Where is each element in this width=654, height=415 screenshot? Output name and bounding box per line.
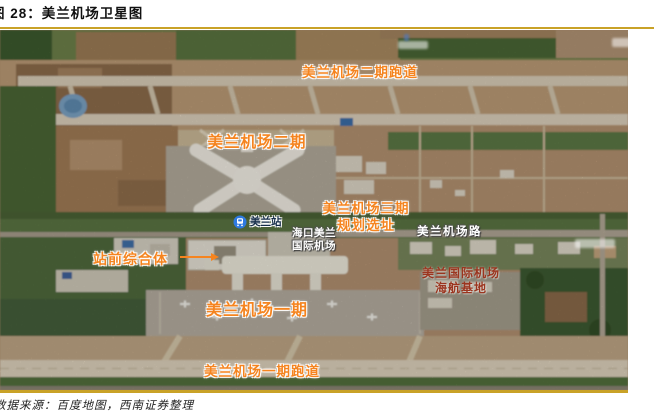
annotation-phase2: 美兰机场二期 bbox=[182, 130, 332, 152]
annotation-hna-base-line2: 海航基地 bbox=[396, 281, 526, 296]
figure-bottom-rule bbox=[0, 390, 628, 393]
annotation-hna-base: 美兰国际机场 海航基地 bbox=[396, 266, 526, 296]
figure-top-rule bbox=[0, 27, 654, 29]
map-label-airport-name: 海口美兰 国际机场 bbox=[292, 227, 336, 252]
rail-station-marker: 美兰站 bbox=[233, 214, 282, 229]
satellite-image: 美兰机场二期跑道 美兰机场二期 美兰机场三期 规划选址 站前综合体 美兰机场一期… bbox=[0, 30, 628, 390]
faint-poi-label bbox=[612, 38, 628, 47]
annotation-arrow-icon bbox=[180, 256, 212, 258]
faint-poi-marker-icon bbox=[404, 34, 409, 41]
figure-source-note: 数据来源：百度地图，西南证券整理 bbox=[0, 397, 194, 413]
rail-station-label: 美兰站 bbox=[250, 214, 282, 229]
map-label-airport-road: 美兰机场路 bbox=[417, 223, 482, 239]
rail-station-icon bbox=[233, 215, 247, 229]
report-figure-page: 图 28：美兰机场卫星图 bbox=[0, 0, 654, 415]
annotation-hna-base-line1: 美兰国际机场 bbox=[396, 266, 526, 281]
annotation-phase1-runway: 美兰机场一期跑道 bbox=[192, 360, 332, 380]
annotation-phase3-line1: 美兰机场三期 bbox=[300, 201, 432, 218]
annotation-phase2-runway: 美兰机场二期跑道 bbox=[250, 61, 470, 81]
faint-poi-label bbox=[398, 41, 428, 49]
figure-title: 图 28：美兰机场卫星图 bbox=[0, 2, 143, 22]
faint-poi-label bbox=[575, 239, 615, 248]
annotation-station-front-complex: 站前综合体 bbox=[93, 249, 168, 269]
annotation-phase1: 美兰机场一期 bbox=[182, 296, 332, 320]
map-label-airport-name-line1: 海口美兰 bbox=[292, 227, 336, 240]
map-label-airport-name-line2: 国际机场 bbox=[292, 240, 336, 253]
